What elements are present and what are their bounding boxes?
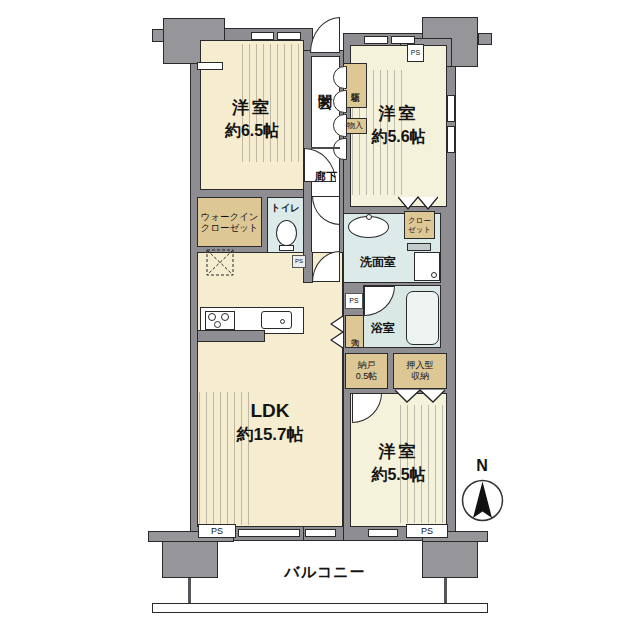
compass-north-label: N [470,456,494,475]
kitchen-half-wall [197,330,265,342]
room-65-name: 洋室 [200,98,304,118]
toilet-label: トイレ [267,202,304,213]
genkan-step-line [311,147,340,149]
balcony-label: バルコニー [255,563,395,581]
pillar-top-right-tab [478,33,492,45]
balcony-window [238,529,300,537]
window [277,32,301,40]
stove-burner-icon [221,313,229,321]
ldk-name: LDK [197,400,343,423]
balcony-window [305,529,336,537]
window [391,36,415,44]
monoire-lower-box: 物入 [345,315,364,348]
monoire-bifold-icon [330,316,345,348]
ps-label: PS [411,49,420,57]
ps-box-top-right: PS [407,44,424,62]
ps-label: PS [295,258,303,265]
closet-bifold-icon [398,196,438,211]
window [197,62,223,70]
window [447,126,455,153]
washbasin-tap-icon [366,214,372,220]
balcony-post [188,578,191,604]
washer-tap-icon [407,243,431,251]
balcony-post [444,578,447,604]
ps-box-toilet: PS [292,255,306,268]
nando-box: 納戸 0.5帖 [345,353,388,389]
ldk-size: 約15.7帖 [197,425,343,445]
ps-label: PS [211,526,223,537]
pillar-bottom-left [162,541,218,578]
room-55-size: 約5.5帖 [350,465,447,484]
wic-label-2: クローゼット [200,222,258,233]
washing-machine-drain-icon [431,272,437,278]
toilet-base-icon [279,245,294,251]
ps-box-bottom-left: PS [198,524,236,538]
kitchen-sink-icon [261,311,292,329]
stove-burner-icon [208,313,216,321]
genkan-label: 玄関 [312,60,338,106]
pillar-bottom-right [422,541,478,578]
refrigerator-space-icon [206,249,234,276]
room-56-size: 約5.6帖 [350,127,447,146]
stove-burner-icon [214,321,221,328]
ps-label: PS [421,526,433,537]
oshiire-label-2: 収納 [411,371,429,382]
nando-label-2: 0.5帖 [356,371,378,382]
room-65-size: 約6.5帖 [200,121,304,140]
room-55-name: 洋室 [350,442,447,462]
pillar-top-left-tab [152,29,164,42]
oshiire-box: 押入型 収納 [393,353,447,389]
bathtub-icon [406,291,439,345]
nando-label-1: 納戸 [358,360,376,371]
rouka-label: 廊下 [311,170,341,183]
balcony-railing [152,603,488,613]
floorplan-canvas: 下駄箱 物入 ウォークイン クローゼット クロー ゼット 物入 納戸 0.5帖 … [0,0,640,640]
bath-label: 浴室 [363,321,403,335]
entrance-door-icon [310,17,340,53]
hatch-room55 [400,405,445,523]
oshiire-label-1: 押入型 [407,360,434,371]
ps-box-bottom-right: PS [406,524,448,538]
window [447,95,455,122]
wic-label-1: ウォークイン [200,211,258,222]
wic-box: ウォークイン クローゼット [197,197,262,247]
window [364,36,388,44]
closet-label-1: クロー [408,216,431,225]
toilet-bowl-icon [276,220,297,246]
window [251,32,274,40]
closet-box: クロー ゼット [404,211,435,239]
ps-label: PS [349,297,358,305]
room-56-name: 洋室 [350,104,447,124]
sink-drain-icon [280,319,285,324]
balcony-window [368,529,398,537]
compass-icon [460,478,505,523]
senmen-label: 洗面室 [345,255,411,269]
oshiire-bifold-icon [395,389,445,404]
closet-label-2: ゼット [408,225,431,234]
ps-box-mid: PS [345,293,363,309]
